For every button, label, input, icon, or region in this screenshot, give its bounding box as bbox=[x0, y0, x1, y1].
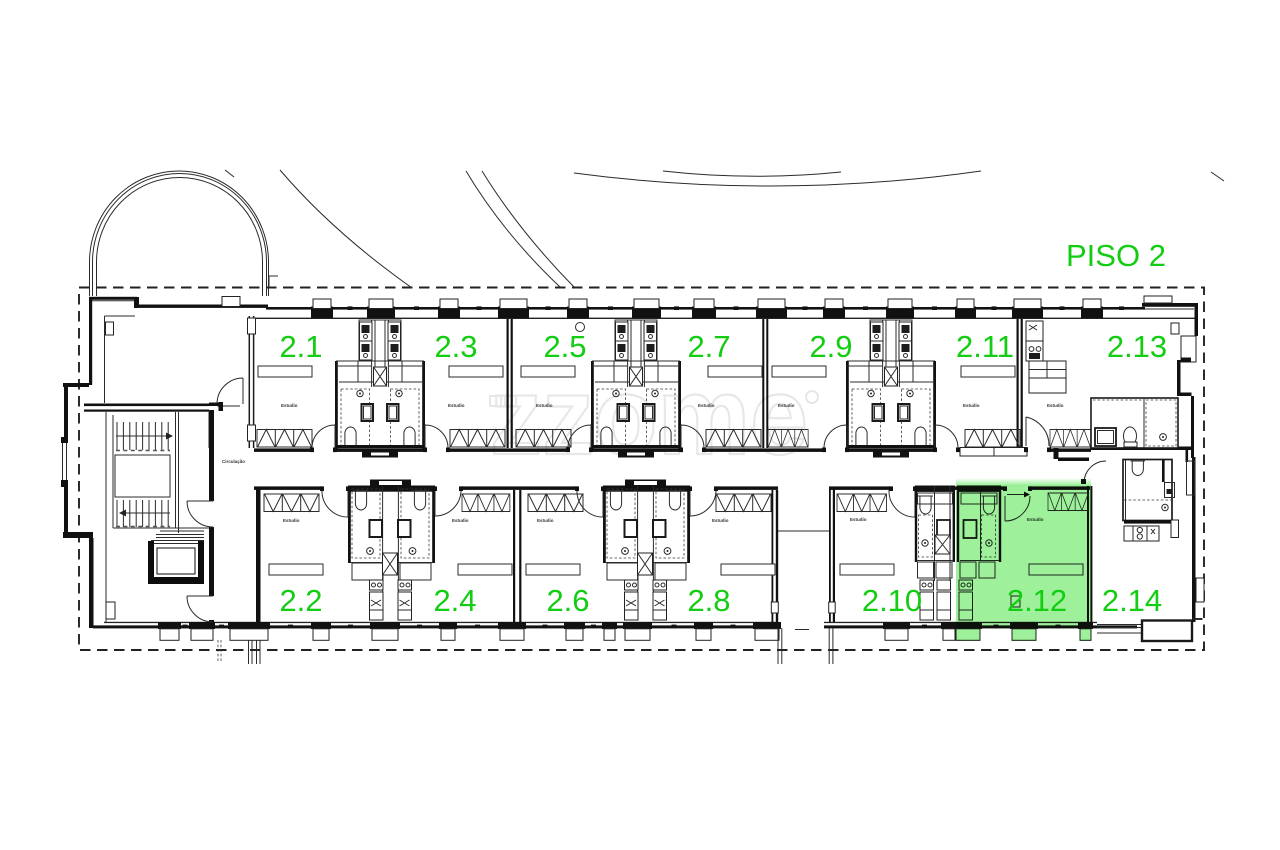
svg-text:Estudio: Estudio bbox=[448, 403, 465, 408]
svg-text:PISO 2: PISO 2 bbox=[1066, 238, 1166, 273]
svg-text:Estudio: Estudio bbox=[850, 517, 867, 522]
svg-text:Estudio: Estudio bbox=[1047, 403, 1064, 408]
svg-text:Estudio: Estudio bbox=[712, 518, 729, 523]
svg-text:2.7: 2.7 bbox=[687, 329, 730, 364]
svg-text:2.14: 2.14 bbox=[1102, 583, 1162, 618]
svg-text:Estudio: Estudio bbox=[537, 518, 554, 523]
svg-text:2.9: 2.9 bbox=[809, 329, 852, 364]
svg-text:Estudio: Estudio bbox=[283, 518, 300, 523]
svg-text:2.12: 2.12 bbox=[1007, 583, 1067, 618]
svg-text:Estudio: Estudio bbox=[536, 403, 553, 408]
svg-text:2.6: 2.6 bbox=[546, 583, 589, 618]
svg-text:2.2: 2.2 bbox=[279, 583, 322, 618]
svg-text:Estudio: Estudio bbox=[281, 403, 298, 408]
svg-text:Estudio: Estudio bbox=[452, 518, 469, 523]
svg-text:2.3: 2.3 bbox=[434, 329, 477, 364]
svg-text:Circulação: Circulação bbox=[222, 459, 245, 464]
svg-text:2.10: 2.10 bbox=[862, 583, 922, 618]
svg-text:2.8: 2.8 bbox=[687, 583, 730, 618]
svg-text:2.11: 2.11 bbox=[956, 329, 1014, 364]
svg-text:Estudio: Estudio bbox=[963, 403, 980, 408]
svg-text:2.13: 2.13 bbox=[1107, 329, 1167, 364]
svg-text:Estudio: Estudio bbox=[778, 403, 795, 408]
svg-text:2.5: 2.5 bbox=[543, 329, 586, 364]
svg-text:2.1: 2.1 bbox=[279, 329, 322, 364]
svg-text:Estudio: Estudio bbox=[698, 403, 715, 408]
svg-text:2.4: 2.4 bbox=[433, 583, 476, 618]
